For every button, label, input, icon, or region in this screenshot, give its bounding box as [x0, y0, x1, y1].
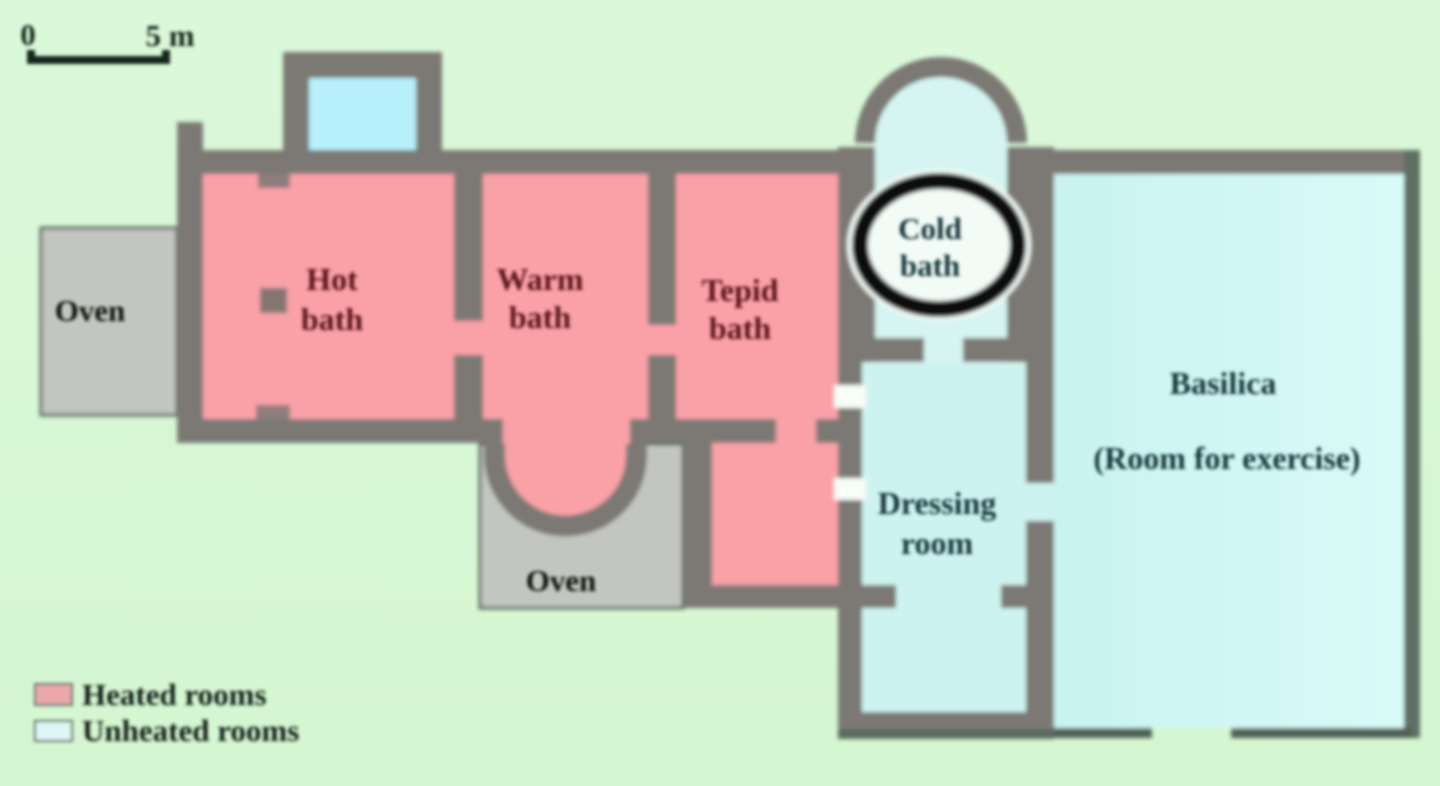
svg-text:(Room for exercise): (Room for exercise)	[1093, 440, 1360, 476]
svg-text:5 m: 5 m	[145, 18, 194, 53]
svg-text:Cold: Cold	[898, 211, 962, 246]
svg-text:Basilica: Basilica	[1170, 365, 1277, 401]
svg-text:Tepid: Tepid	[701, 272, 778, 308]
svg-text:0: 0	[20, 17, 36, 52]
svg-text:bath: bath	[301, 301, 363, 337]
svg-text:bath: bath	[900, 248, 960, 283]
svg-text:Heated rooms: Heated rooms	[82, 677, 267, 712]
svg-text:room: room	[901, 525, 974, 561]
svg-text:Hot: Hot	[306, 261, 358, 297]
svg-text:bath: bath	[509, 299, 571, 335]
svg-text:bath: bath	[709, 310, 771, 346]
svg-text:Dressing: Dressing	[878, 485, 997, 521]
svg-text:Oven: Oven	[55, 293, 126, 328]
svg-text:Oven: Oven	[526, 563, 597, 598]
svg-text:Warm: Warm	[496, 261, 583, 297]
svg-text:Unheated rooms: Unheated rooms	[82, 713, 299, 748]
